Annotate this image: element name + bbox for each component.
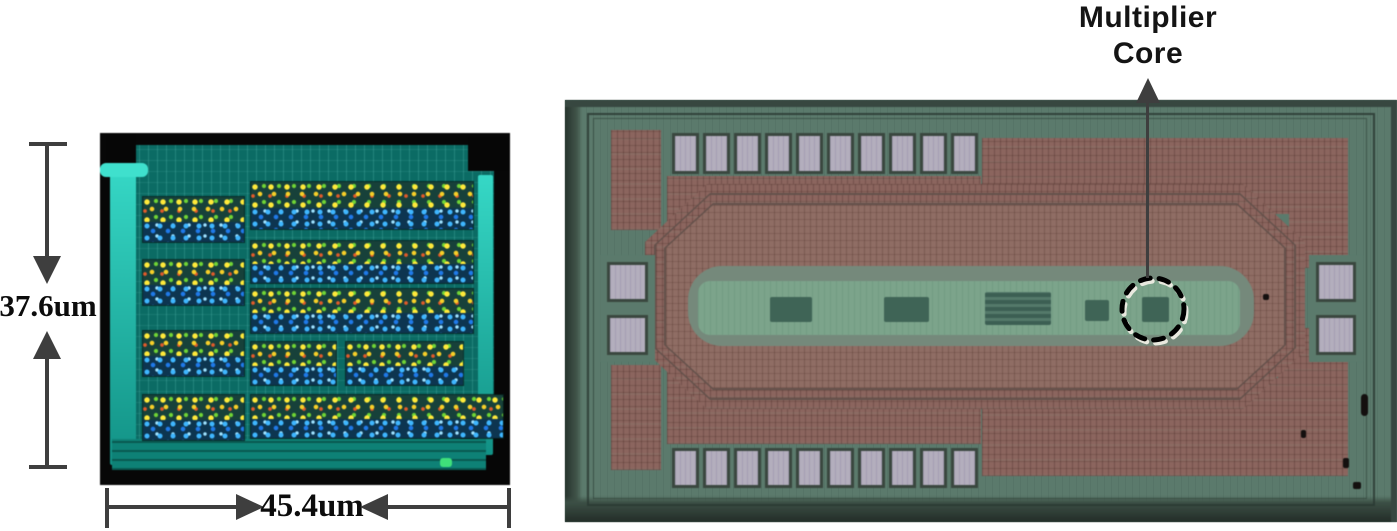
bond-pad-right-2 (1316, 315, 1356, 355)
cell-stripe-metal (251, 366, 336, 385)
bond-pad-top-4 (765, 133, 792, 174)
bond-pad-top-2 (703, 133, 730, 174)
cell-stripe-metal (143, 356, 244, 376)
layout-green-dot (440, 458, 452, 467)
bond-pad-right-1 (1316, 262, 1356, 302)
cell-row-right-6 (250, 394, 504, 439)
cell-stripe-devices (143, 197, 244, 222)
cell-row-right-3 (250, 288, 474, 334)
die-surface (565, 100, 1397, 522)
bond-pad-top-8 (889, 133, 916, 174)
height-dim-upper-line (45, 145, 49, 258)
bond-pad-left-2 (607, 315, 648, 355)
width-dim-right-tick (507, 488, 511, 528)
bond-pad-bottom-6 (827, 448, 854, 488)
layout-cell-rows (100, 133, 510, 485)
bond-pad-top-1 (672, 133, 699, 174)
die-speck-5 (1361, 394, 1368, 416)
cell-stripe-devices (251, 182, 473, 208)
die-speck-2 (1301, 430, 1306, 438)
bond-pad-top-5 (796, 133, 823, 174)
width-dim-left-line (108, 505, 238, 509)
width-dim-label: 45.4um (260, 488, 364, 525)
cell-row-left-4 (142, 394, 245, 441)
bond-pad-bottom-8 (889, 448, 916, 488)
multiplier-core-marker-circle (1114, 270, 1192, 348)
height-dim-label: 37.6um (0, 288, 98, 324)
bond-pad-top-6 (827, 133, 854, 174)
cell-stripe-metal (143, 285, 244, 305)
cell-row-left-1 (142, 196, 245, 243)
bond-pad-bottom-3 (734, 448, 761, 488)
bond-pad-left-1 (607, 262, 648, 302)
width-dim-right-line (386, 505, 507, 509)
height-dim-down-arrow-icon (33, 256, 61, 284)
width-dim-left-arrow-icon (360, 494, 388, 520)
bond-pad-bottom-4 (765, 448, 792, 488)
bond-pad-bottom-10 (951, 448, 978, 488)
cell-stripe-metal (251, 313, 473, 333)
cell-row-left-2 (142, 259, 245, 306)
cell-stripe-devices (251, 395, 503, 419)
cell-row-right-4 (250, 341, 337, 386)
bond-pad-bottom-9 (920, 448, 947, 488)
bond-pad-top-9 (920, 133, 947, 174)
cell-stripe-metal (251, 264, 473, 283)
cell-stripe-metal (251, 419, 503, 438)
height-dim-bottom-tick (29, 465, 67, 469)
callout-label-line2: Core (1056, 36, 1240, 72)
cell-stripe-devices (251, 289, 473, 313)
cell-stripe-devices (143, 395, 244, 420)
die-speck-1 (1263, 294, 1269, 300)
bond-pad-top-3 (734, 133, 761, 174)
bond-pad-bottom-1 (672, 448, 699, 488)
layout-screenshot (100, 133, 510, 485)
cell-row-right-1 (250, 181, 474, 230)
cell-stripe-metal (251, 208, 473, 229)
die-micrograph (565, 100, 1397, 522)
callout-label: Multiplier Core (1056, 0, 1240, 72)
callout-arrow-line (1146, 100, 1149, 278)
cell-stripe-metal (346, 366, 463, 385)
cell-row-right-2 (250, 240, 474, 284)
figure-page: { "figure": { "left_panel": { "title": "… (0, 0, 1397, 531)
height-dim-up-arrow-icon (33, 331, 61, 359)
bond-pad-top-10 (951, 133, 978, 174)
cell-stripe-metal (143, 420, 244, 440)
cell-stripe-metal (143, 222, 244, 242)
bond-pads (565, 100, 1397, 522)
die-speck-4 (1353, 482, 1361, 489)
cell-row-left-3 (142, 330, 245, 377)
cell-stripe-devices (143, 331, 244, 356)
cell-stripe-devices (251, 342, 336, 366)
cell-stripe-devices (346, 342, 463, 366)
cell-stripe-devices (251, 241, 473, 264)
bond-pad-bottom-7 (858, 448, 885, 488)
callout-label-line1: Multiplier (1056, 0, 1240, 36)
height-dim-lower-line (45, 357, 49, 468)
die-speck-3 (1343, 458, 1349, 468)
cell-row-right-5 (345, 341, 464, 386)
cell-stripe-devices (143, 260, 244, 285)
bond-pad-bottom-5 (796, 448, 823, 488)
bond-pad-top-7 (858, 133, 885, 174)
bond-pad-bottom-2 (703, 448, 730, 488)
